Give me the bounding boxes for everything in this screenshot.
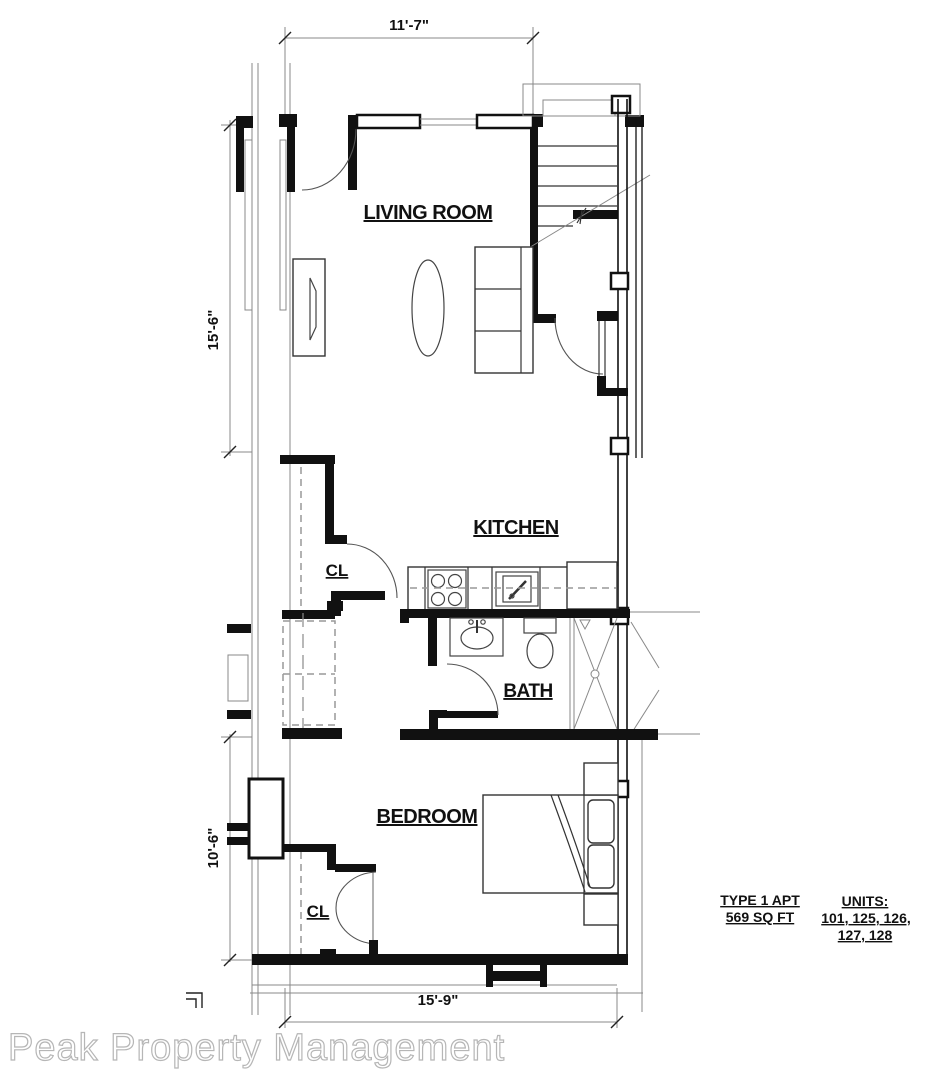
sofa-symbol xyxy=(475,247,533,373)
apt-type-label: TYPE 1 APT xyxy=(720,892,800,908)
bath xyxy=(428,612,700,738)
west-party-wall xyxy=(227,63,297,1015)
closet-upper-label: CL xyxy=(326,561,349,580)
kitchen xyxy=(400,562,630,623)
apt-area-label: 569 SQ FT xyxy=(726,909,795,925)
bath-door-swing xyxy=(447,664,498,715)
chase-column xyxy=(249,779,283,858)
kitchen-label: KITCHEN xyxy=(473,517,558,539)
bedroom-label: BEDROOM xyxy=(377,806,478,828)
floor-plan-drawing: 11'-7" 15'-6" 10'-6" 15'-9" xyxy=(0,0,950,1080)
dimension-left-lower: 10'-6" xyxy=(205,828,222,869)
bed-symbol xyxy=(483,795,618,893)
closet-door-swing xyxy=(336,872,376,908)
dimension-left-upper: 15'-6" xyxy=(205,310,222,351)
unit-info: TYPE 1 APT 569 SQ FT UNITS: 101, 125, 12… xyxy=(720,892,911,943)
shower-head-symbol xyxy=(580,620,590,629)
tv-console-symbol xyxy=(293,259,325,356)
units-line1: 101, 125, 126, xyxy=(821,910,911,926)
living-room-label: LIVING ROOM xyxy=(364,202,493,224)
closet-door-swing xyxy=(336,908,376,944)
bath-door xyxy=(429,664,498,738)
west-window xyxy=(245,140,252,310)
vanity-sink-symbol xyxy=(450,618,503,656)
west-window xyxy=(280,140,286,310)
vestibule-door-swing xyxy=(555,318,603,374)
coffee-table-symbol xyxy=(412,260,444,356)
nightstand-symbol xyxy=(584,763,618,795)
corner-mark xyxy=(186,993,202,1008)
bath-label: BATH xyxy=(503,681,552,702)
bath-door-leaf xyxy=(447,711,498,718)
neighbor-shower-lines xyxy=(631,622,659,668)
nightstand-symbol xyxy=(584,894,618,925)
floor-plan-page: 11'-7" 15'-6" 10'-6" 15'-9" xyxy=(0,0,950,1080)
refrigerator-symbol xyxy=(567,562,617,609)
living-room xyxy=(293,247,533,373)
north-window xyxy=(477,115,533,128)
washer-dryer-dashed-box xyxy=(282,601,343,739)
bedroom-north-wall xyxy=(400,729,658,740)
dimension-top: 11'-7" xyxy=(389,17,429,34)
shower-symbol xyxy=(570,618,617,729)
closet-lower-label: CL xyxy=(307,902,330,921)
north-wall xyxy=(302,114,644,190)
units-line2: 127, 128 xyxy=(838,927,893,943)
stairs xyxy=(523,55,650,396)
north-window xyxy=(357,115,420,128)
pillow-symbol xyxy=(588,800,614,843)
closet-lower xyxy=(282,844,378,958)
closet-upper xyxy=(280,455,397,616)
entry-door-swing xyxy=(302,129,356,190)
pillow-symbol xyxy=(588,845,614,888)
units-heading: UNITS: xyxy=(842,893,889,909)
bedroom xyxy=(252,763,628,987)
closet-door-swing xyxy=(347,544,397,598)
south-window xyxy=(486,971,547,981)
dimension-bottom: 15'-9" xyxy=(418,992,459,1009)
watermark: Peak Property Management xyxy=(8,1027,505,1069)
toilet-symbol xyxy=(524,618,556,668)
